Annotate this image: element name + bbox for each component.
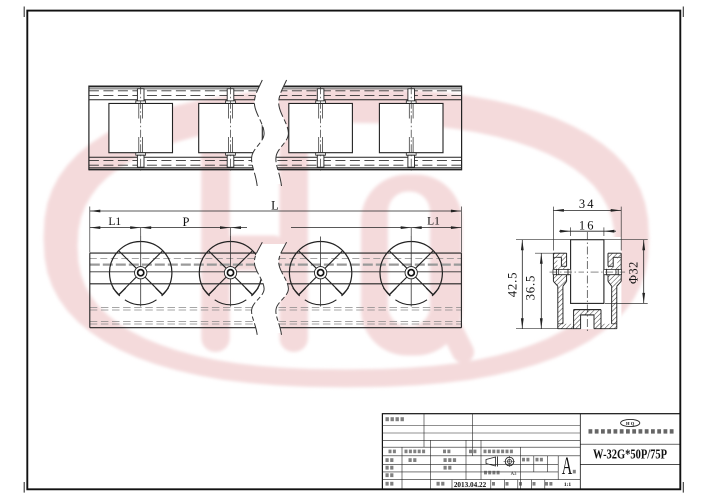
svg-text:34: 34: [579, 197, 596, 211]
svg-text:L1: L1: [427, 216, 440, 228]
svg-text:1:1: 1:1: [564, 482, 572, 488]
svg-text:36.5: 36.5: [523, 275, 537, 301]
svg-text:A3: A3: [511, 472, 517, 477]
svg-text:2013.04.22: 2013.04.22: [454, 481, 487, 489]
svg-text:W-32G*50P/75P: W-32G*50P/75P: [593, 447, 667, 462]
svg-text:Φ32: Φ32: [626, 261, 640, 284]
svg-text:H Q: H Q: [626, 421, 635, 426]
svg-text:L1: L1: [108, 216, 121, 228]
svg-text:L: L: [271, 199, 279, 213]
svg-text:16: 16: [579, 219, 596, 233]
svg-text:A: A: [562, 453, 573, 480]
svg-text:42.5: 42.5: [506, 272, 520, 298]
svg-text:P: P: [183, 215, 190, 229]
